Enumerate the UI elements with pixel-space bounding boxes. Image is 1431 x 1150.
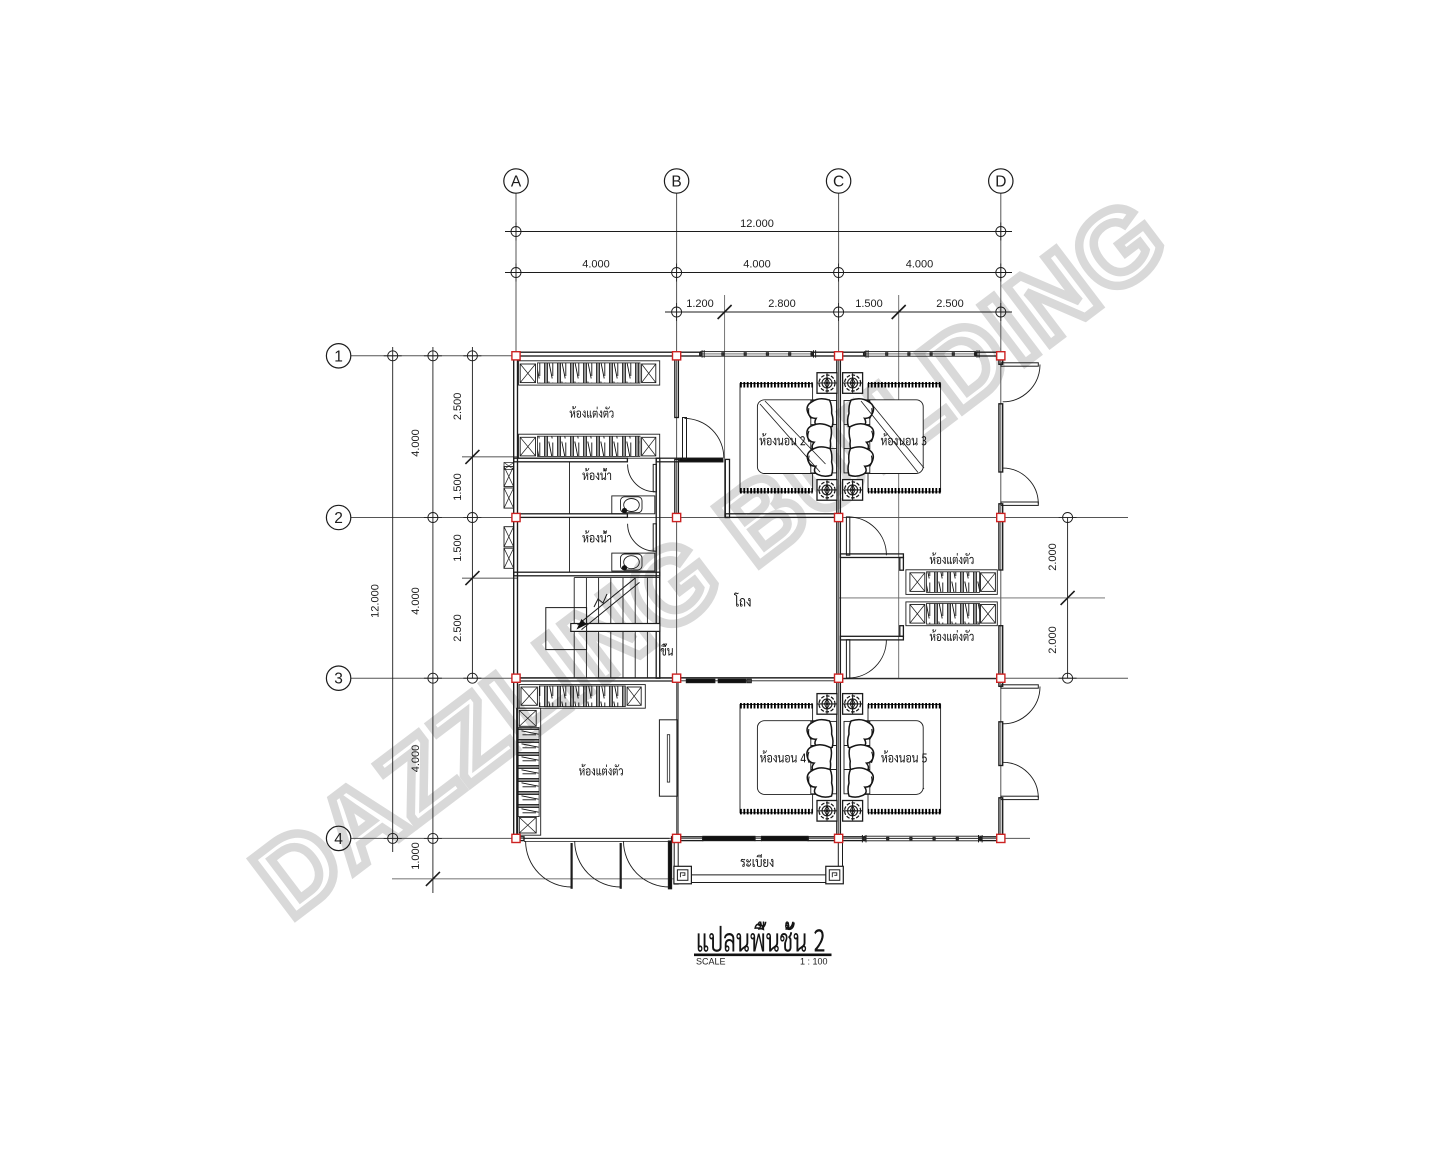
svg-text:B: B — [671, 174, 681, 191]
svg-text:4: 4 — [334, 831, 343, 848]
svg-text:12.000: 12.000 — [740, 218, 774, 230]
svg-text:4.000: 4.000 — [743, 259, 771, 271]
svg-text:4.000: 4.000 — [906, 259, 934, 271]
svg-text:12.000: 12.000 — [369, 584, 381, 618]
svg-text:D: D — [995, 174, 1006, 191]
svg-text:SCALE: SCALE — [696, 957, 726, 967]
svg-text:4.000: 4.000 — [410, 587, 422, 615]
svg-text:DAZZLING BUILDING: DAZZLING BUILDING — [233, 175, 1188, 939]
svg-text:2.500: 2.500 — [452, 393, 464, 421]
svg-text:1.200: 1.200 — [686, 298, 714, 310]
svg-text:1.000: 1.000 — [410, 842, 422, 870]
svg-text:C: C — [833, 174, 844, 191]
svg-text:1 : 100: 1 : 100 — [800, 957, 828, 967]
svg-text:2.500: 2.500 — [452, 614, 464, 642]
svg-text:4.000: 4.000 — [410, 429, 422, 457]
svg-text:3: 3 — [334, 671, 343, 688]
svg-text:4.000: 4.000 — [582, 259, 610, 271]
svg-text:A: A — [511, 174, 522, 191]
svg-text:2.800: 2.800 — [768, 298, 796, 310]
svg-text:1.500: 1.500 — [452, 473, 464, 501]
svg-text:4.000: 4.000 — [410, 745, 422, 773]
svg-text:1: 1 — [334, 348, 343, 365]
svg-text:2.000: 2.000 — [1047, 543, 1059, 571]
svg-text:2: 2 — [334, 510, 343, 527]
svg-text:2.000: 2.000 — [1047, 626, 1059, 654]
svg-text:2.500: 2.500 — [936, 298, 964, 310]
svg-text:1.500: 1.500 — [452, 534, 464, 562]
svg-text:1.500: 1.500 — [855, 298, 883, 310]
